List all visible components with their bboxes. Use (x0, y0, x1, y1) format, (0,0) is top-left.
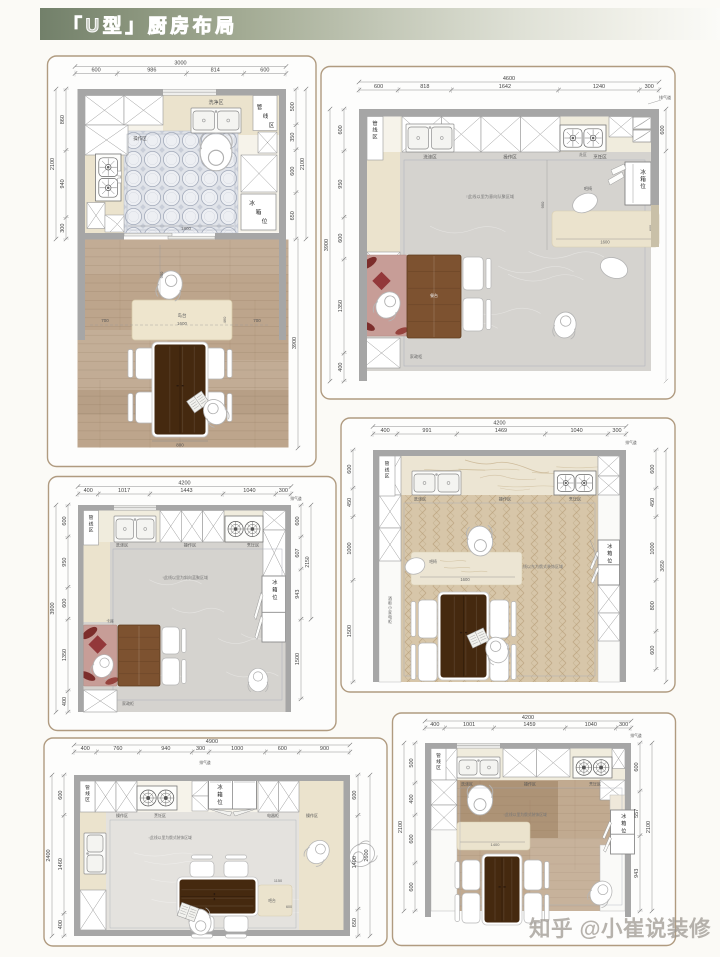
svg-text:1600: 1600 (600, 240, 610, 245)
svg-text:冰: 冰 (249, 199, 255, 207)
svg-text:3900: 3900 (324, 239, 330, 251)
svg-text:1600: 1600 (460, 577, 470, 582)
svg-text:家政柜: 家政柜 (410, 353, 423, 360)
svg-text:400: 400 (338, 363, 344, 372)
svg-text:2150: 2150 (305, 556, 311, 567)
svg-text:线: 线 (89, 520, 94, 527)
svg-text:↑此线以里为俄式装饰区域: ↑此线以里为俄式装饰区域 (148, 835, 192, 840)
svg-text:灶区: 灶区 (579, 152, 587, 157)
svg-text:600: 600 (62, 599, 68, 608)
svg-text:600: 600 (338, 234, 344, 243)
svg-text:冰: 冰 (217, 783, 223, 791)
svg-text:位: 位 (217, 798, 223, 806)
svg-text:1800: 1800 (181, 226, 192, 231)
svg-text:986: 986 (147, 68, 156, 74)
svg-text:4200: 4200 (178, 481, 190, 487)
svg-text:600: 600 (286, 905, 292, 909)
svg-text:950: 950 (62, 558, 68, 567)
svg-text:线: 线 (436, 758, 441, 764)
svg-text:冰: 冰 (272, 578, 278, 586)
svg-text:1000: 1000 (650, 542, 656, 554)
svg-text:箱: 箱 (621, 820, 626, 827)
svg-text:1400: 1400 (491, 842, 501, 847)
svg-text:600: 600 (409, 834, 415, 843)
svg-text:线: 线 (263, 112, 269, 120)
svg-text:600: 600 (650, 646, 656, 655)
svg-text:860: 860 (60, 115, 66, 124)
svg-text:1400: 1400 (352, 856, 358, 868)
svg-text:700: 700 (253, 318, 261, 323)
svg-text:柜: 柜 (388, 601, 392, 606)
svg-text:600: 600 (278, 746, 287, 752)
svg-text:↑此线以里为俄式装饰区域: ↑此线以里为俄式装饰区域 (503, 812, 547, 817)
svg-text:「U型」厨房布局: 「U型」厨房布局 (63, 14, 238, 37)
svg-text:400: 400 (430, 722, 439, 728)
svg-text:818: 818 (420, 84, 429, 90)
svg-text:操作区: 操作区 (524, 781, 536, 787)
svg-text:区: 区 (385, 474, 390, 480)
svg-text:柜: 柜 (388, 619, 392, 624)
svg-text:洗涤区: 洗涤区 (461, 781, 473, 787)
svg-text:烹饪区: 烹饪区 (154, 812, 166, 818)
svg-text:排气道: 排气道 (199, 760, 211, 765)
svg-text:管: 管 (257, 103, 263, 111)
svg-text:冰: 冰 (621, 813, 626, 820)
svg-text:800: 800 (176, 443, 184, 448)
svg-text:4200: 4200 (522, 715, 534, 721)
svg-text:1040: 1040 (585, 722, 597, 728)
svg-text:烹饪区: 烹饪区 (589, 781, 601, 787)
svg-text:900: 900 (159, 271, 164, 278)
svg-text:600: 600 (634, 762, 640, 771)
svg-text:知乎 @小崔说装修: 知乎 @小崔说装修 (529, 916, 711, 941)
svg-text:操作区: 操作区 (503, 154, 517, 161)
svg-text:岛台: 岛台 (178, 312, 187, 319)
svg-text:600: 600 (409, 882, 415, 891)
svg-text:943: 943 (295, 590, 301, 599)
svg-text:3900: 3900 (50, 602, 56, 614)
svg-text:烹饪区: 烹饪区 (593, 154, 607, 161)
svg-text:排气道: 排气道 (625, 440, 637, 445)
svg-text:排气道: 排气道 (630, 733, 642, 738)
svg-text:2600: 2600 (364, 849, 370, 861)
svg-text:600: 600 (260, 68, 269, 74)
svg-text:600: 600 (347, 465, 353, 474)
svg-text:600: 600 (92, 68, 101, 74)
svg-text:500: 500 (409, 758, 415, 767)
svg-text:吧椅: 吧椅 (584, 185, 592, 191)
svg-text:操作区: 操作区 (306, 812, 318, 818)
svg-text:350: 350 (290, 133, 296, 142)
svg-text:940: 940 (60, 179, 66, 188)
svg-text:4600: 4600 (503, 76, 515, 82)
svg-text:400: 400 (81, 746, 90, 752)
svg-text:940: 940 (161, 746, 170, 752)
svg-text:电: 电 (388, 614, 392, 619)
svg-text:1000: 1000 (347, 542, 353, 554)
svg-text:排气道: 排气道 (290, 496, 302, 501)
svg-text:小: 小 (388, 605, 392, 610)
svg-text:943: 943 (634, 869, 640, 878)
svg-text:↑此线以里为意向队聚区域: ↑此线以里为意向队聚区域 (466, 193, 515, 200)
svg-text:300: 300 (612, 428, 621, 434)
svg-text:1469: 1469 (495, 428, 507, 434)
svg-text:400: 400 (381, 428, 390, 434)
svg-text:洗涤区: 洗涤区 (414, 496, 427, 503)
svg-text:线: 线 (85, 790, 90, 796)
svg-text:400: 400 (409, 794, 415, 803)
svg-text:↑此线以东为俄式装饰区域: ↑此线以东为俄式装饰区域 (517, 563, 563, 569)
svg-text:吧台: 吧台 (268, 898, 276, 903)
svg-text:1600: 1600 (177, 321, 188, 326)
svg-text:位: 位 (640, 182, 646, 190)
svg-text:1500: 1500 (295, 653, 301, 665)
svg-text:700: 700 (101, 318, 109, 323)
svg-text:2400: 2400 (46, 849, 52, 861)
svg-text:1240: 1240 (593, 84, 605, 90)
svg-text:814: 814 (211, 68, 220, 74)
svg-text:1017: 1017 (118, 488, 130, 494)
svg-text:位: 位 (272, 593, 277, 601)
svg-text:箱: 箱 (256, 208, 262, 216)
svg-text:1040: 1040 (570, 428, 582, 434)
svg-text:烹饪区: 烹饪区 (569, 496, 582, 503)
svg-text:箱: 箱 (640, 175, 646, 183)
svg-text:1001: 1001 (463, 722, 475, 728)
svg-text:4200: 4200 (493, 421, 505, 427)
svg-text:管: 管 (385, 460, 390, 467)
svg-text:1642: 1642 (499, 84, 511, 90)
svg-text:区: 区 (89, 528, 94, 534)
svg-text:600: 600 (352, 791, 358, 800)
svg-text:950: 950 (338, 180, 344, 189)
svg-text:1350: 1350 (62, 649, 68, 661)
svg-text:线: 线 (385, 466, 390, 473)
svg-text:400: 400 (84, 488, 93, 494)
svg-text:洗涤区: 洗涤区 (423, 154, 437, 161)
svg-text:卡座: 卡座 (106, 619, 114, 624)
svg-text:3000: 3000 (174, 61, 186, 67)
svg-text:4900: 4900 (206, 739, 218, 745)
svg-text:3650: 3650 (660, 560, 666, 571)
svg-text:800: 800 (650, 601, 656, 610)
svg-text:区: 区 (269, 122, 275, 129)
svg-text:1150: 1150 (274, 879, 282, 883)
svg-text:600: 600 (295, 516, 301, 525)
svg-text:450: 450 (347, 498, 353, 507)
svg-text:300: 300 (196, 746, 205, 752)
svg-text:2100: 2100 (300, 158, 306, 170)
svg-text:600: 600 (660, 125, 666, 134)
svg-text:300: 300 (60, 224, 66, 233)
svg-text:400: 400 (58, 920, 64, 929)
svg-text:1350: 1350 (338, 300, 344, 312)
svg-text:500: 500 (290, 102, 296, 111)
svg-text:排气道: 排气道 (659, 94, 671, 100)
svg-text:1500: 1500 (347, 625, 353, 637)
svg-text:460: 460 (222, 316, 227, 323)
svg-text:760: 760 (113, 746, 122, 752)
svg-text:操作区: 操作区 (116, 812, 128, 818)
svg-text:家政柜: 家政柜 (122, 700, 134, 706)
svg-text:电器柜: 电器柜 (267, 812, 279, 818)
svg-text:1459: 1459 (523, 722, 535, 728)
svg-text:1040: 1040 (243, 488, 255, 494)
svg-text:餐台: 餐台 (430, 292, 438, 298)
svg-text:箱: 箱 (272, 586, 277, 594)
svg-text:吧椅: 吧椅 (429, 559, 437, 564)
svg-text:位: 位 (262, 217, 268, 225)
svg-text:2100: 2100 (646, 821, 652, 833)
svg-text:家: 家 (388, 610, 392, 615)
svg-text:洗净区: 洗净区 (208, 99, 223, 106)
svg-text:位: 位 (607, 557, 612, 564)
svg-text:1000: 1000 (231, 746, 243, 752)
svg-text:管: 管 (436, 752, 441, 759)
svg-text:冰: 冰 (640, 168, 646, 176)
svg-text:管: 管 (372, 119, 377, 127)
svg-text:650: 650 (352, 918, 358, 927)
svg-text:557: 557 (634, 809, 640, 818)
svg-text:450: 450 (650, 498, 656, 507)
svg-text:607: 607 (295, 548, 301, 557)
svg-text:600: 600 (338, 125, 344, 134)
svg-text:1460: 1460 (58, 858, 64, 870)
svg-text:管: 管 (85, 784, 90, 791)
svg-text:600: 600 (62, 516, 68, 525)
svg-text:操作区: 操作区 (133, 135, 147, 142)
svg-text:600: 600 (58, 791, 64, 800)
svg-text:酒: 酒 (388, 596, 392, 601)
svg-text:操作区: 操作区 (184, 542, 197, 549)
svg-text:950: 950 (540, 201, 545, 208)
svg-text:991: 991 (422, 428, 431, 434)
svg-text:300: 300 (645, 84, 654, 90)
svg-text:管: 管 (89, 514, 94, 521)
svg-text:区: 区 (85, 797, 90, 802)
svg-text:650: 650 (290, 211, 296, 220)
svg-text:600: 600 (374, 84, 383, 90)
svg-text:箱: 箱 (217, 791, 223, 799)
svg-text:900: 900 (320, 746, 329, 752)
svg-text:区: 区 (372, 133, 377, 140)
svg-text:2100: 2100 (50, 158, 56, 170)
svg-text:1443: 1443 (180, 488, 192, 494)
svg-text:区: 区 (436, 765, 441, 770)
svg-text:600: 600 (290, 167, 296, 176)
svg-text:600: 600 (650, 465, 656, 474)
svg-text:300: 300 (619, 722, 628, 728)
svg-text:300: 300 (279, 488, 288, 494)
svg-text:400: 400 (62, 697, 68, 706)
svg-text:线: 线 (372, 126, 377, 134)
svg-text:洗涤区: 洗涤区 (116, 542, 129, 549)
svg-text:操作区: 操作区 (499, 496, 512, 503)
svg-text:位: 位 (621, 827, 626, 834)
svg-text:2100: 2100 (398, 821, 404, 833)
svg-text:箱: 箱 (607, 550, 612, 557)
svg-text:3900: 3900 (292, 337, 298, 349)
svg-text:烹饪区: 烹饪区 (247, 542, 260, 549)
svg-text:↑此线以里为斜向蓝聚区域: ↑此线以里为斜向蓝聚区域 (162, 574, 208, 580)
svg-text:冰: 冰 (607, 543, 612, 550)
